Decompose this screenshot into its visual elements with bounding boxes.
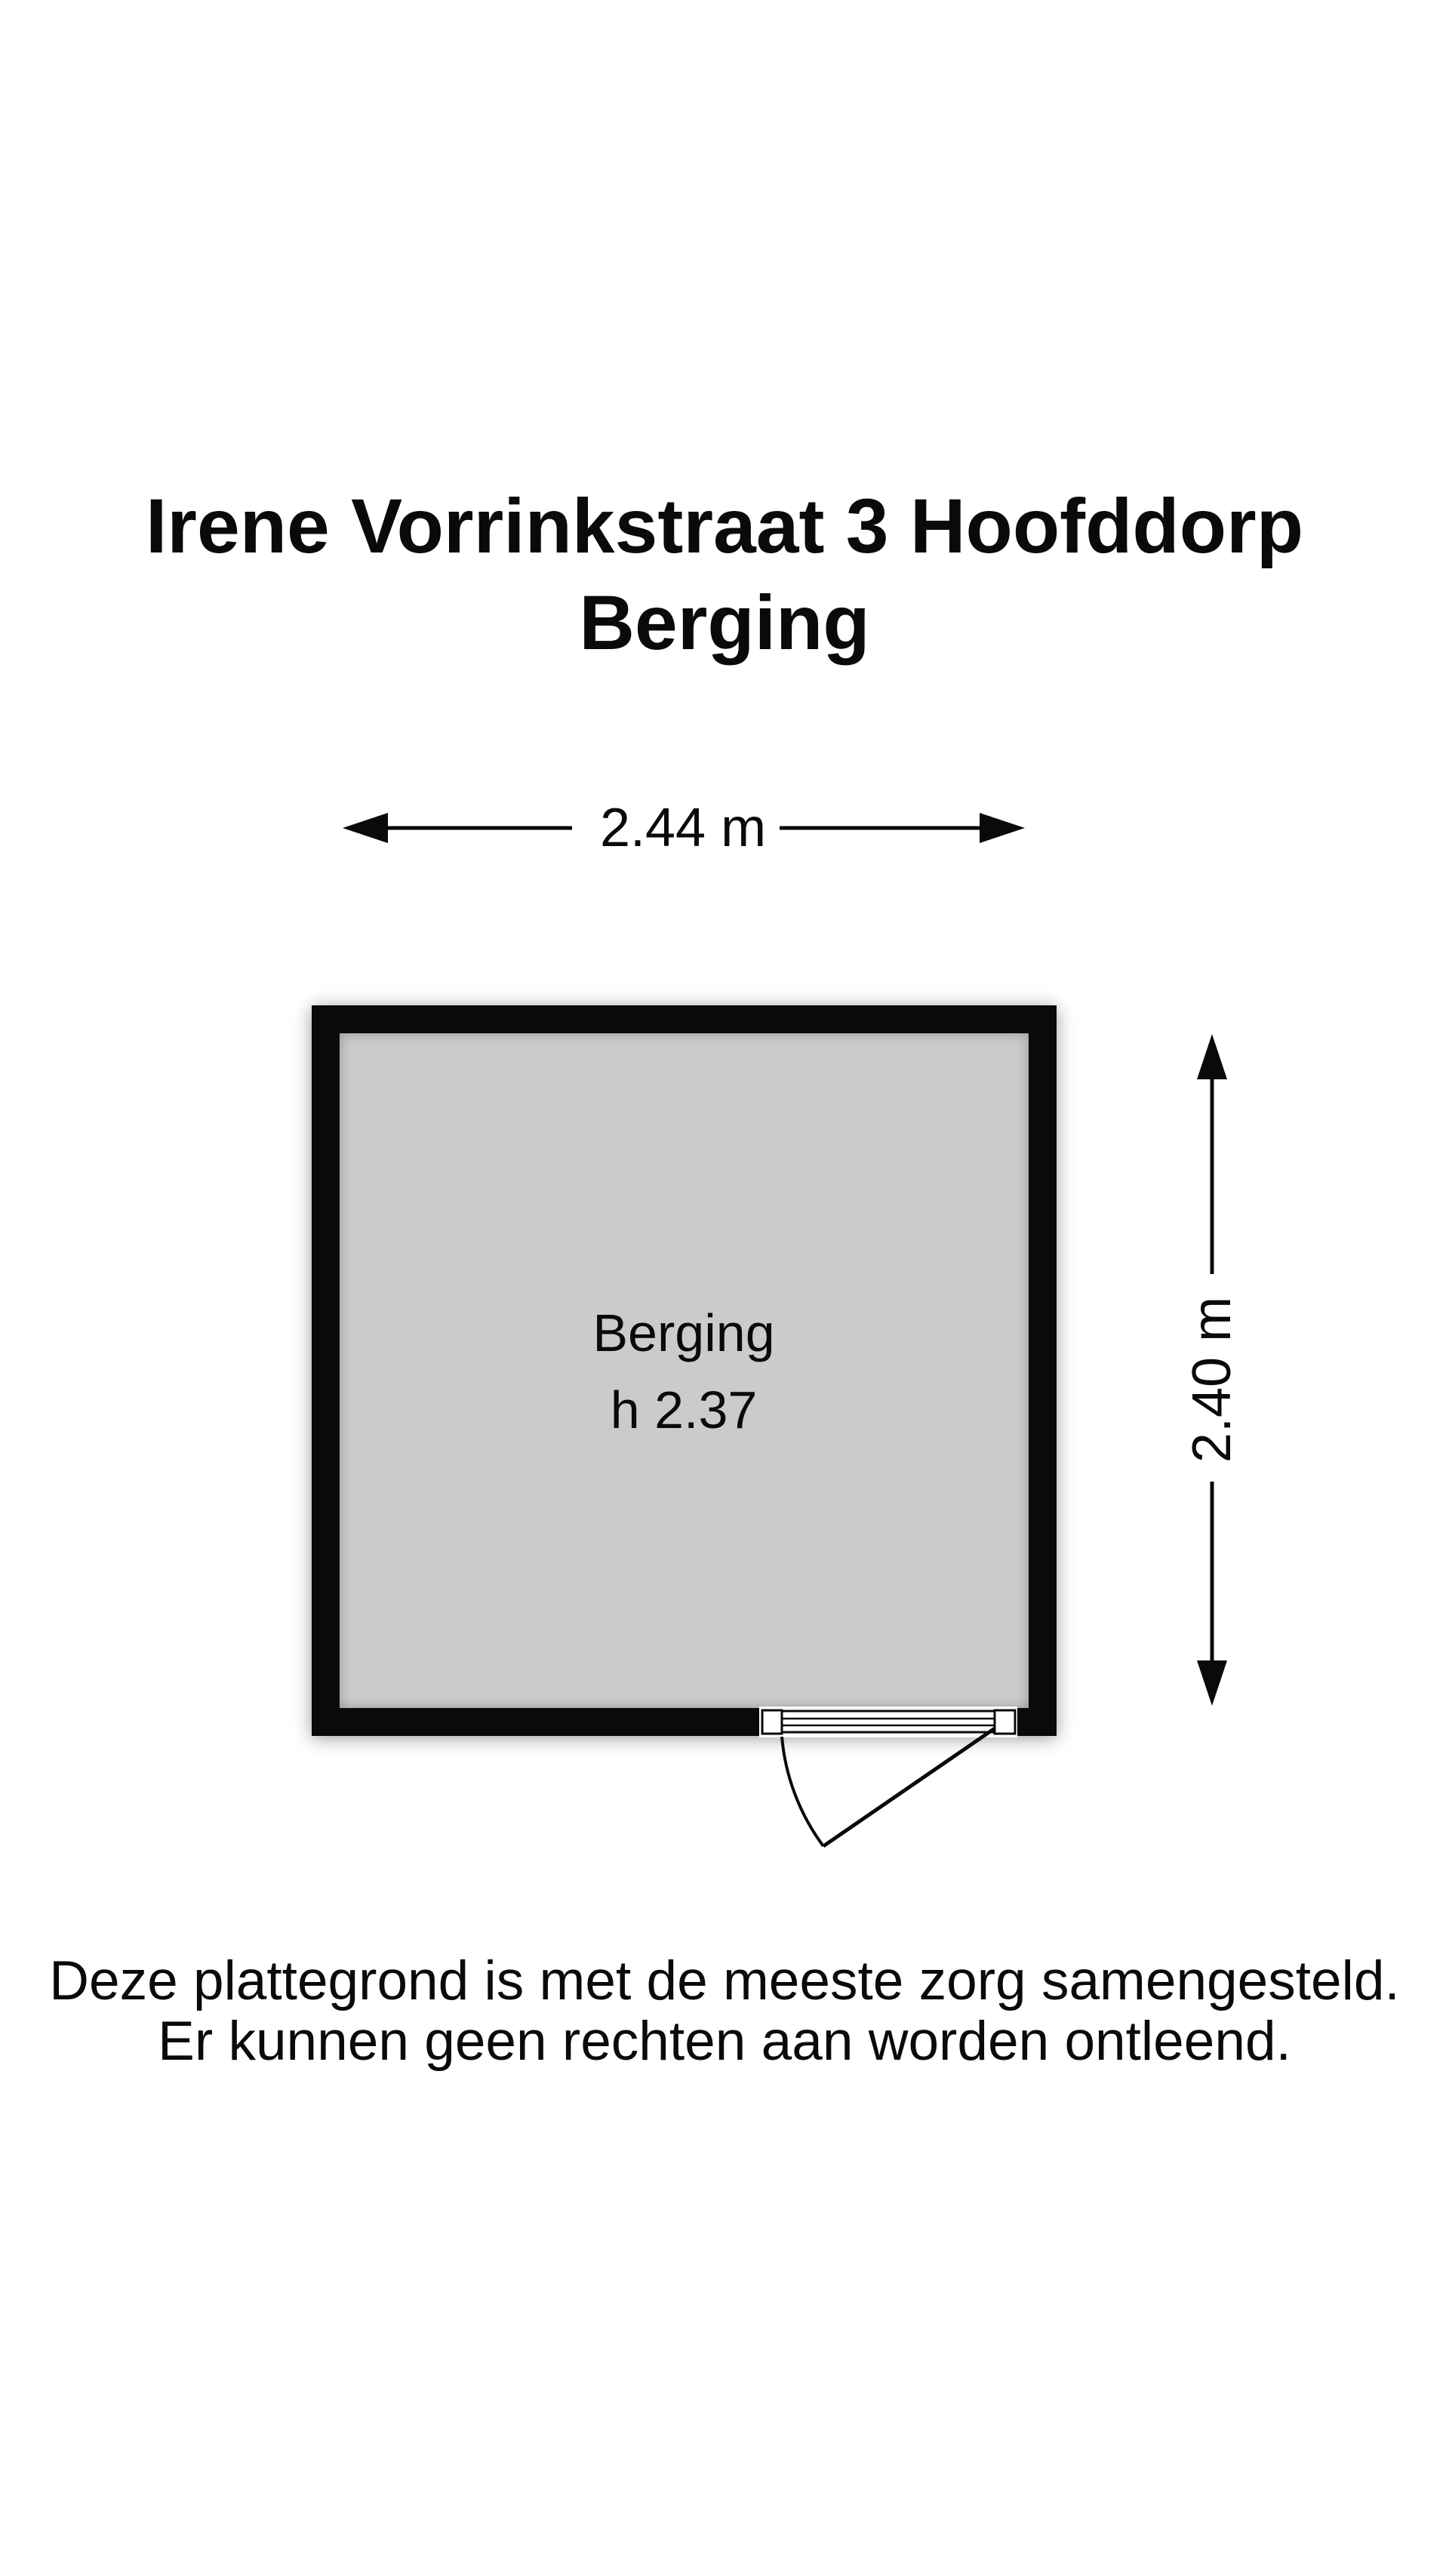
disclaimer-line1: Deze plattegrond is met de meeste zorg s…: [0, 1951, 1449, 2011]
page-title-line2: Berging: [0, 574, 1449, 671]
width-arrowhead-left-icon: [343, 813, 388, 843]
page-title-line1: Irene Vorrinkstraat 3 Hoofddorp: [0, 478, 1449, 574]
height-arrowhead-bottom-icon: [1197, 1660, 1227, 1706]
room-ceiling-height-label: h 2.37: [495, 1371, 872, 1448]
disclaimer: Deze plattegrond is met de meeste zorg s…: [0, 1951, 1449, 2072]
disclaimer-line2: Er kunnen geen rechten aan worden ontlee…: [0, 2011, 1449, 2072]
door-swing-arc: [782, 1737, 823, 1846]
door-leaf-open: [823, 1728, 995, 1846]
page-title: Irene Vorrinkstraat 3 Hoofddorp Berging: [0, 478, 1449, 671]
width-arrowhead-right-icon: [980, 813, 1025, 843]
height-arrowhead-top-icon: [1197, 1034, 1227, 1079]
room-label: Berging h 2.37: [495, 1294, 872, 1448]
width-dimension-label: 2.44 m: [532, 801, 834, 855]
height-dimension-label: 2.40 m: [1178, 1153, 1246, 1606]
floorplan-page: Irene Vorrinkstraat 3 Hoofddorp Berging …: [0, 0, 1449, 2576]
room-name-label: Berging: [495, 1294, 872, 1371]
